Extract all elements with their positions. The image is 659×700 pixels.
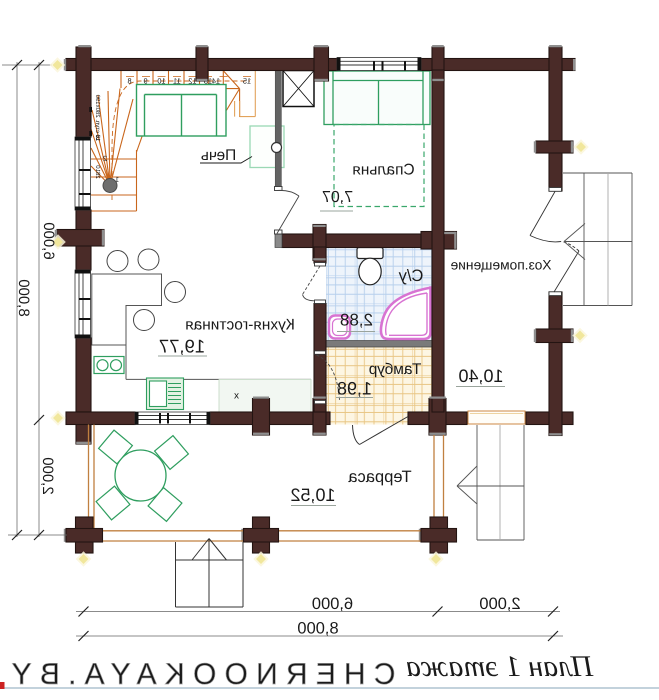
svg-text:2810: 2810 xyxy=(94,165,101,179)
svg-text:8,000: 8,000 xyxy=(297,620,338,638)
svg-text:Терраса: Терраса xyxy=(348,468,412,486)
svg-text:2,000: 2,000 xyxy=(39,457,56,495)
svg-text:2: 2 xyxy=(103,154,107,163)
svg-text:x: x xyxy=(234,391,239,402)
svg-text:10,52: 10,52 xyxy=(290,485,335,505)
svg-text:Хоз.помещение: Хоз.помещение xyxy=(450,258,551,273)
svg-text:Кухня-гостиная: Кухня-гостиная xyxy=(185,317,295,334)
svg-text:6,000: 6,000 xyxy=(312,595,353,613)
svg-text:7,07: 7,07 xyxy=(322,189,353,206)
svg-text:8,000: 8,000 xyxy=(15,279,32,317)
svg-text:8: 8 xyxy=(127,77,131,86)
svg-text:2,000: 2,000 xyxy=(479,595,520,613)
svg-text:План 1 этажа: План 1 этажа xyxy=(406,650,594,683)
svg-text:19,77: 19,77 xyxy=(159,336,205,357)
svg-text:1,98: 1,98 xyxy=(337,379,372,399)
svg-text:Спальня: Спальня xyxy=(352,162,414,179)
svg-text:CHERNOOKAYA.BY: CHERNOOKAYA.BY xyxy=(3,658,395,691)
svg-text:Тамбур: Тамбур xyxy=(369,361,422,378)
svg-text:Печь: Печь xyxy=(201,147,236,164)
svg-text:2,88: 2,88 xyxy=(340,311,373,330)
svg-text:15: 15 xyxy=(243,77,251,86)
svg-text:6,000: 6,000 xyxy=(40,222,57,260)
svg-text:10,40: 10,40 xyxy=(458,366,503,386)
svg-text:С/у: С/у xyxy=(398,267,424,285)
svg-text:15 ступ. 280х190: 15 ступ. 280х190 xyxy=(94,94,101,141)
